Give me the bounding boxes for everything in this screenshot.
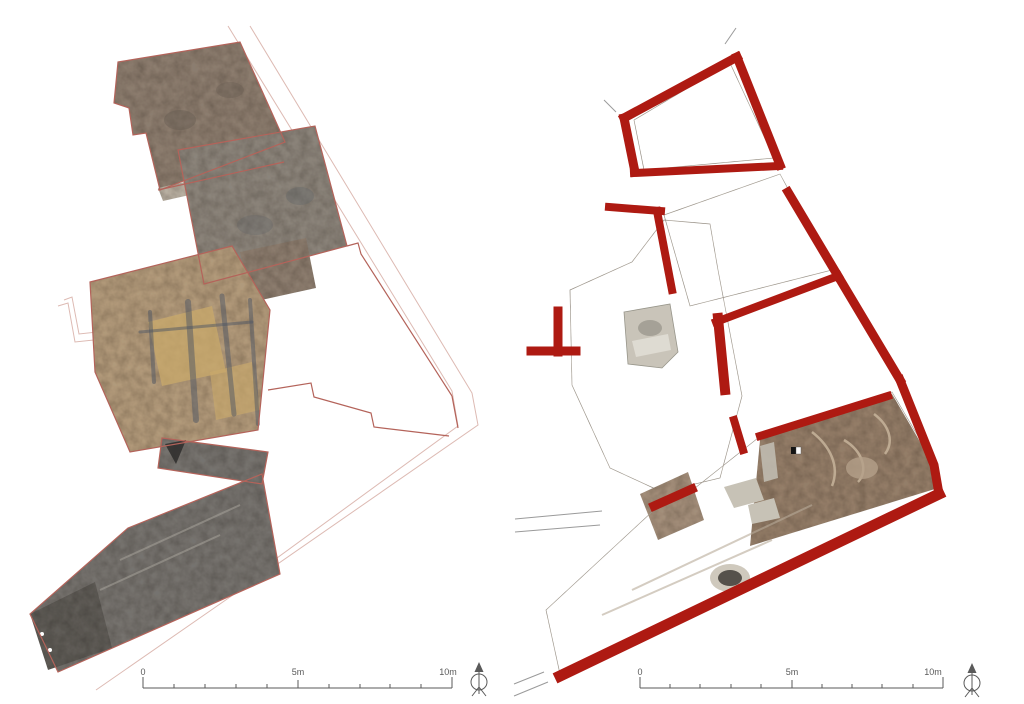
scale-label-mid: 5m (786, 667, 799, 677)
scale-label-zero: 0 (140, 667, 145, 677)
north-arrow-icon (964, 663, 980, 697)
scale-label-end: 10m (924, 667, 942, 677)
figure: 0 5m 10m (0, 0, 1024, 704)
scale-label-end: 10m (439, 667, 457, 677)
left-plan: 0 5m 10m (0, 0, 512, 704)
scale-bar: 0 5m 10m (637, 667, 943, 688)
scale-bar: 0 5m 10m (140, 667, 456, 688)
scale-label-mid: 5m (292, 667, 305, 677)
north-arrow-icon (471, 662, 487, 696)
right-plan: 0 5m 10m (512, 0, 1024, 704)
scale-label-zero: 0 (637, 667, 642, 677)
